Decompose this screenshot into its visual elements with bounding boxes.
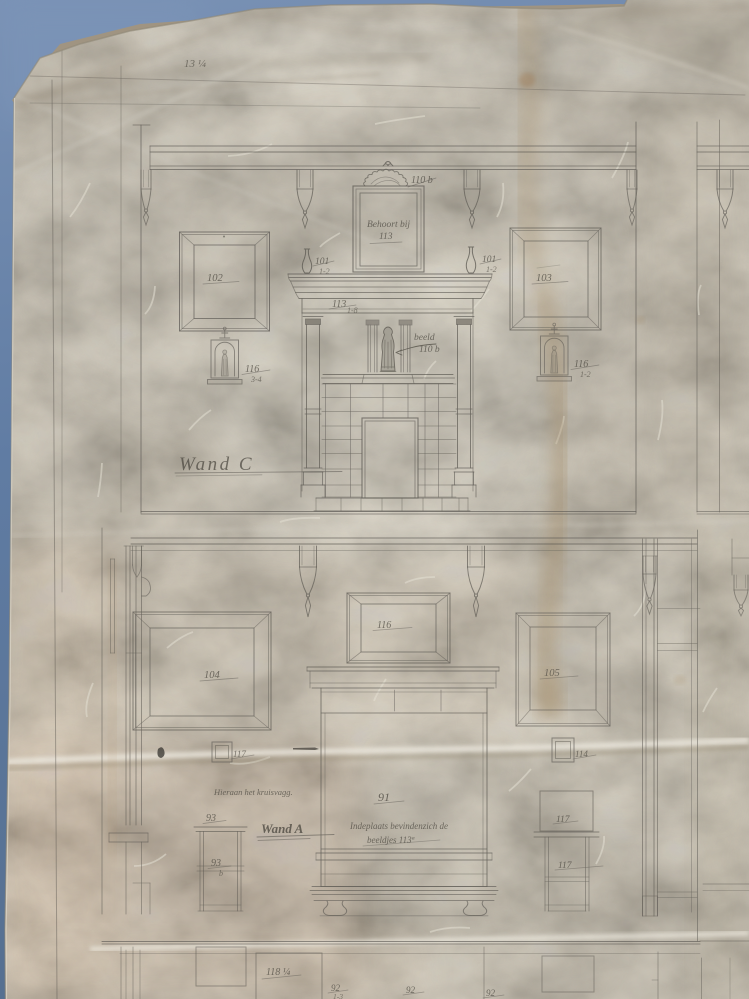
- svg-text:3-4: 3-4: [250, 375, 262, 384]
- svg-text:110 b: 110 b: [419, 345, 440, 355]
- svg-text:Wand A: Wand A: [261, 821, 304, 836]
- svg-text:Behoort bij: Behoort bij: [367, 220, 410, 230]
- svg-text:91: 91: [378, 790, 390, 804]
- svg-text:beeld: beeld: [414, 333, 435, 343]
- svg-text:1-2: 1-2: [486, 265, 497, 274]
- svg-text:1-8: 1-8: [347, 306, 358, 315]
- svg-text:113: 113: [379, 232, 393, 242]
- svg-text:Wand C: Wand C: [179, 454, 254, 475]
- svg-text:Indeplaats bevindenzich de: Indeplaats bevindenzich de: [349, 821, 448, 831]
- svg-text:13 ¼: 13 ¼: [184, 58, 206, 70]
- svg-text:1-2: 1-2: [580, 370, 591, 379]
- svg-text:1-3: 1-3: [333, 992, 343, 999]
- svg-text:101: 101: [482, 255, 496, 265]
- svg-text:1-2: 1-2: [319, 267, 330, 276]
- svg-text:103: 103: [536, 273, 552, 284]
- svg-text:Hieraan het kruisvagg.: Hieraan het kruisvagg.: [213, 787, 293, 797]
- svg-text:b: b: [219, 869, 223, 878]
- svg-text:101: 101: [315, 257, 329, 267]
